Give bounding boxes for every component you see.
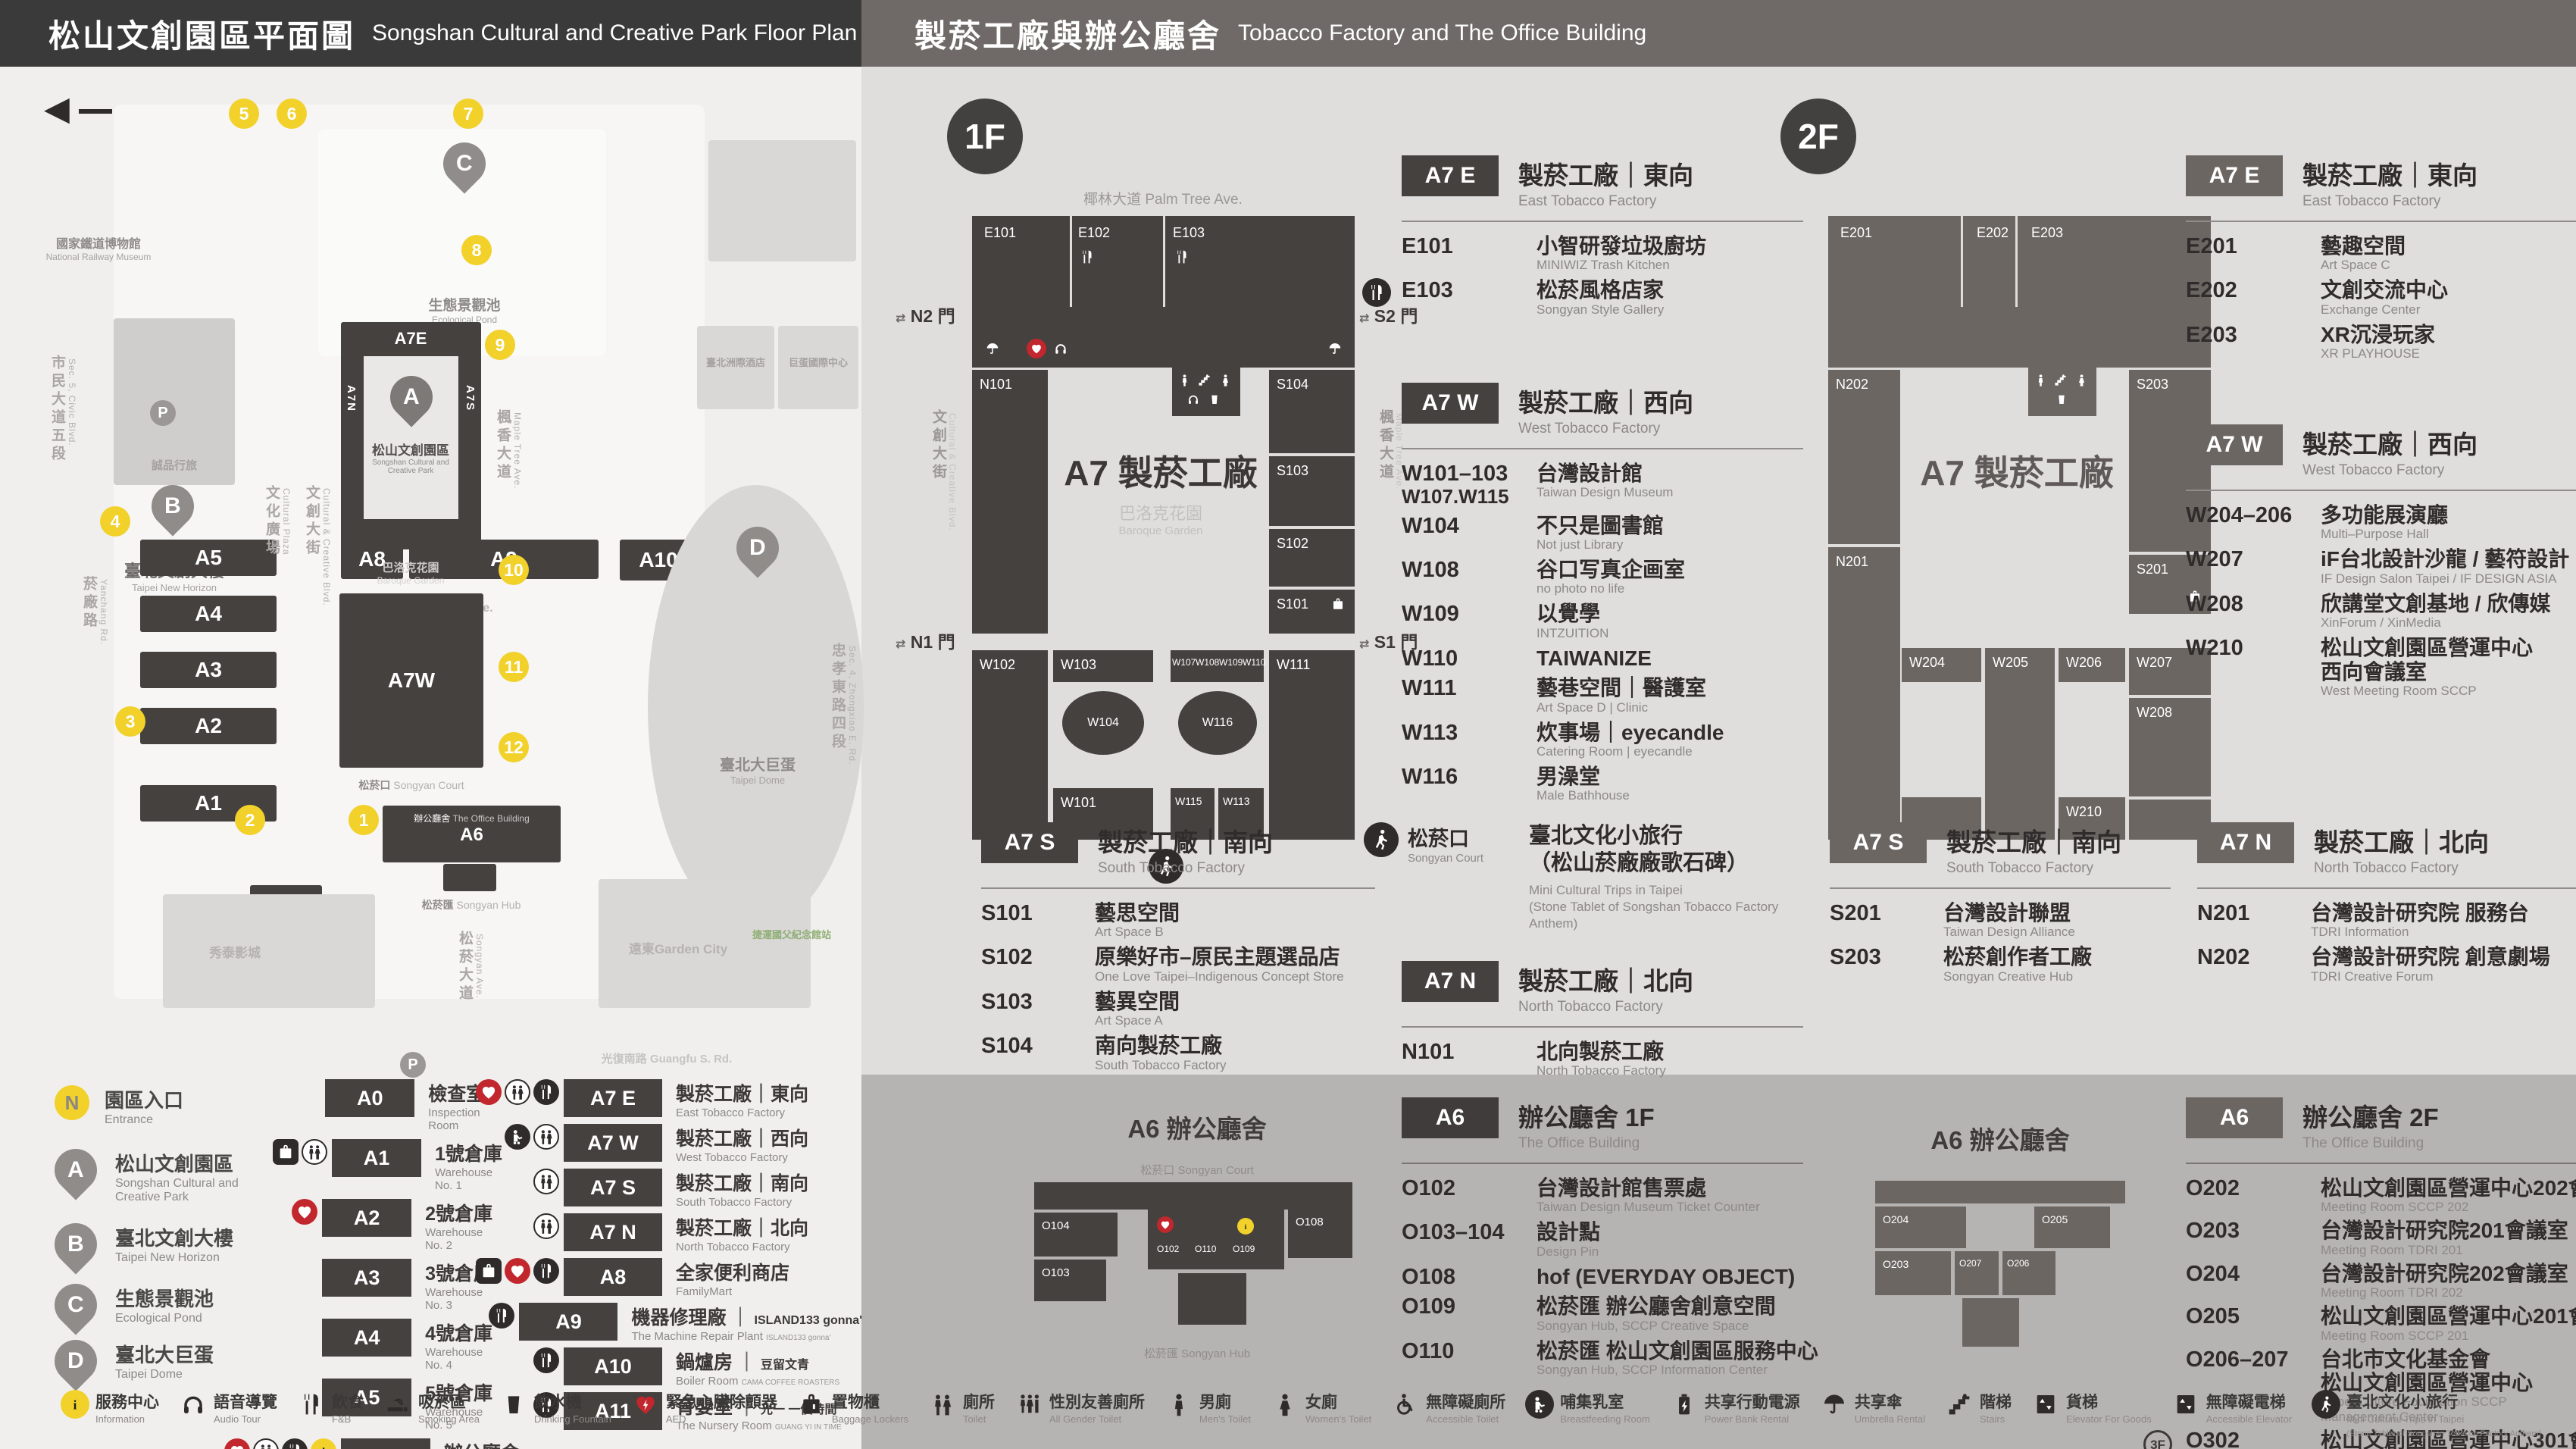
listing-row: W210 松山文創園區營運中心西向會議室West Meeting Room SC…: [2186, 636, 2576, 699]
building-code-chip: A6: [341, 1438, 430, 1449]
listing-row: W207 iF台北設計沙龍 / 藝符設計IF Design Salon Taip…: [2186, 547, 2576, 586]
legend-building-row: A8 全家便利商店｜ FamilyMart: [468, 1258, 862, 1298]
strip-goods-elevator: 貨梯Elevator For Goods: [2031, 1390, 2152, 1426]
listing-row: O109 松菸匯 辦公廳舍創意空間Songyan Hub, SCCP Creat…: [1402, 1294, 1803, 1333]
section-1f-east: A7 E 製菸工廠｜東向East Tobacco Factory E101 小智…: [1402, 155, 1803, 323]
room-s101: S101: [1269, 590, 1355, 634]
building-name-zh: 製菸工廠｜西向: [676, 1128, 808, 1150]
strip-audio-tour: 語音導覽Audio Tour: [179, 1390, 277, 1426]
room-n202: N202: [1828, 370, 1900, 544]
section-2f-west: A7 W 製菸工廠｜西向West Tobacco Factory W204–20…: [2186, 424, 2576, 704]
toilet-icon: [253, 1438, 279, 1449]
songyan-court-block: 松菸口Songyan Court 臺北文化小旅行 （松山菸廠廠歌石碑） Mini…: [1408, 822, 1817, 932]
building-name-en: South Tobacco Factory: [676, 1196, 792, 1209]
information-icon: [1237, 1218, 1254, 1235]
mens-toilet-icon: [1165, 1390, 1193, 1419]
building-code-chip: A3: [322, 1259, 411, 1297]
compass-line: [79, 109, 112, 114]
civic-blvd-label: 市民大道五段: [47, 355, 67, 464]
north-arrow-icon: ◀: [44, 89, 70, 128]
room-s103: S103: [1269, 456, 1355, 526]
building-name-zh: 製菸工廠｜北向: [676, 1218, 808, 1239]
building-code-chip: A0: [325, 1079, 414, 1117]
building-a4: A4: [140, 596, 277, 632]
building-name-zh: 辦公廳舍: [444, 1443, 520, 1449]
guangfu-rd-label: 光復南路 Guangfu S. Rd.: [602, 1050, 733, 1066]
strip-womens: 女廁Women's Toilet: [1271, 1390, 1371, 1426]
listing-row: W204–206 多功能展演廳Multi–Purpose Hall: [2186, 503, 2576, 542]
room-w111: W111: [1269, 650, 1355, 840]
building-a2: A2: [140, 708, 277, 744]
zhongxiao-rd-en: Sec. 4, Zhongxiao E. Rd.: [847, 646, 858, 765]
room-o204: O204: [1875, 1206, 1966, 1248]
strip-fnb: 飲食F&B: [297, 1390, 364, 1426]
hotel1-label: 臺北洲際酒店: [706, 355, 765, 369]
stairs-icon: [2054, 374, 2067, 390]
womens-toilet-icon: [1219, 374, 1232, 390]
building-code-chip: A7 N: [564, 1213, 662, 1251]
room-divider: [2015, 216, 2018, 307]
legend-building-row: A7 E 製菸工廠｜東向｜ East Tobacco Factory: [468, 1079, 862, 1119]
cultural-plaza-label: 文化廣場: [261, 485, 282, 558]
womens-toilet-icon: [2075, 374, 2088, 390]
office-plan-title: A6 辦公廳舍: [1930, 1120, 2069, 1156]
room-o203: O203: [1875, 1251, 1951, 1295]
songyan-ave-label: 松菸大道: [455, 931, 475, 1003]
facility-icon-strip: 服務中心Information 語音導覽Audio Tour 飲食F&B 吸菸區…: [61, 1390, 2541, 1440]
legend-building-row: A4 4號倉庫｜ Warehouse No. 4: [273, 1319, 492, 1372]
toilet-icon: [533, 1124, 559, 1150]
strip-breastfeeding: 哺集乳室Breastfeeding Room: [1525, 1390, 1650, 1426]
room-w206: W206: [2059, 648, 2125, 682]
section-1f-north: A7 N 製菸工廠｜北向North Tobacco Factory N101 北…: [1402, 961, 1803, 1084]
power-bank-rental-icon: [1670, 1390, 1699, 1419]
building-name-en: FamilyMart: [676, 1285, 732, 1298]
listing-row: E202 文創交流中心Exchange Center: [2186, 278, 2576, 317]
listing-row: S201 台灣設計聯盟Taiwan Design Alliance: [1830, 901, 2171, 940]
umbrella-icon: [1328, 342, 1342, 359]
yanchang-rd-label: 菸廠路: [79, 576, 99, 631]
a7-plan-title: A7 製菸工廠: [1920, 446, 2114, 496]
aed-icon: [1157, 1216, 1174, 1233]
room-w107-110: W107 W108 W109 W110: [1171, 650, 1264, 682]
room-n101: N101: [972, 370, 1048, 634]
building-name-en: The Machine Repair Plant: [631, 1330, 762, 1343]
dome-label: 臺北大巨蛋Taipei Dome: [720, 753, 796, 786]
section-2f-south: A7 S 製菸工廠｜南向South Tobacco Factory S201 台…: [1830, 822, 2171, 990]
civic-blvd-en: Sec. 5, Civic Blvd.: [67, 358, 77, 446]
audio-tour-icon: [1054, 342, 1068, 359]
room-block-east: E201 E202 E203: [1828, 216, 2211, 368]
songyan-court-icon: [1364, 822, 1399, 857]
umbrella-rental-icon: [1820, 1390, 1849, 1419]
parking-icon: P: [400, 1052, 426, 1078]
audio-tour-icon: [1187, 393, 1199, 409]
listing-row: O103–104 設計點Design Pin: [1402, 1220, 1803, 1259]
cultural-plaza-en: Cultural Plaza: [281, 488, 292, 556]
entrance-marker-3: 3: [115, 706, 145, 737]
toilet-icon: [302, 1139, 327, 1165]
pond-label: 生態景觀池Ecological Pond: [428, 294, 500, 325]
floor-2f-plan: E201 E202 E203 N202 N201 S203 S201 W207 …: [1818, 182, 2243, 864]
mens-toilet-icon: [1178, 374, 1191, 390]
creative-blvd-plan-en: Cultural & Creative Blvd.: [947, 413, 958, 531]
floor-1f-circle: 1F: [947, 99, 1023, 174]
toilet-icon: [533, 1213, 559, 1239]
entrance-marker-12: 12: [499, 732, 529, 762]
accessible-toilet-icon: [1391, 1390, 1420, 1419]
listing-row: W104 不只是圖書館Not just Library: [1402, 514, 1803, 552]
toilet-stub: [1172, 368, 1240, 416]
songyan-hub-label: 松菸匯 Songyan Hub: [1144, 1345, 1250, 1361]
songyan-court-label: 松菸口 Songyan Court: [358, 778, 464, 793]
right-header: 製菸工廠與辦公廳舍 Tobacco Factory and The Office…: [861, 0, 2576, 67]
baroque-garden-plan-label: 巴洛克花園: [1119, 500, 1202, 524]
left-title-zh: 松山文創園區平面圖: [48, 11, 355, 57]
entrance-zh: 園區入口: [105, 1085, 183, 1113]
room-w204: W204: [1902, 648, 1981, 682]
room-s102: S102: [1269, 529, 1355, 587]
listing-row: W110 TAIWANIZE: [1402, 646, 1803, 671]
maple-ave-en: Maple Tree Ave.: [512, 412, 523, 490]
strip-accessible-toilet: 無障礙廁所Accessible Toilet: [1391, 1390, 1505, 1426]
strip-all-gender: 性別友善廁所All Gender Toilet: [1014, 1390, 1145, 1426]
building-name-zh: 機器修理廠: [631, 1307, 726, 1329]
strip-accessible-elevator: 無障礙電梯Accessible Elevator: [2171, 1390, 2292, 1426]
baroque-garden-label: 巴洛克花園Baroque Garden: [377, 559, 445, 586]
a7n-map-label: A7N: [345, 385, 358, 412]
listing-row: S203 松菸創作者工廠Songyan Creative Hub: [1830, 945, 2171, 984]
strip-mens: 男廁Men's Toilet: [1165, 1390, 1251, 1426]
songyan-court-label: 松菸口 Songyan Court: [1140, 1162, 1253, 1178]
palm-tree-ave-plan-label: 椰林大道 Palm Tree Ave.: [1083, 188, 1243, 208]
restaurant-icon: [533, 1258, 559, 1284]
legend-pin-d: D 臺北大巨蛋Taipei Dome: [55, 1340, 282, 1382]
left-title-en: Songshan Cultural and Creative Park Floo…: [372, 20, 857, 46]
building-a6: 辦公廳舍 The Office Building A6: [383, 806, 561, 862]
gardencity-label: 遠東Garden City: [629, 938, 727, 957]
aed-icon: [1027, 339, 1046, 358]
section-badge: A7 E: [2186, 155, 2283, 196]
entrance-marker-6: 6: [277, 99, 307, 129]
office-top-bar: [1034, 1182, 1352, 1210]
room-o205: O205: [2034, 1206, 2110, 1248]
audio-tour-icon: [179, 1390, 208, 1419]
left-header: 松山文創園區平面圖 Songshan Cultural and Creative…: [0, 0, 861, 67]
aed-icon: [292, 1199, 317, 1225]
songyan-ave-en: Songyan Ave.: [474, 934, 485, 999]
section-badge: A7 N: [1402, 961, 1499, 1002]
legend-building-row: A9 機器修理廠｜ISLAND133 gonna' The Machine Re…: [468, 1303, 862, 1343]
legend-building-row: A6 辦公廳舍｜ The Office Building: [273, 1438, 492, 1449]
legend-building-row: A2 2號倉庫｜ Warehouse No. 2: [273, 1199, 492, 1252]
entrance-marker-11: 11: [499, 652, 529, 682]
legend-building-row: A7 N 製菸工廠｜北向｜ North Tobacco Factory: [468, 1213, 862, 1253]
room-w208: W208: [2129, 698, 2211, 796]
goods-elevator-icon: [2031, 1390, 2060, 1419]
room-o102-109: O102 O110 O109: [1148, 1209, 1284, 1269]
room-divider: [1163, 216, 1165, 307]
listing-row: E201 藝趣空間Art Space C: [2186, 234, 2576, 273]
railway-museum-label: 國家鐵道博物館National Railway Museum: [46, 233, 152, 262]
listing-row: S103 藝異空間Art Space A: [981, 990, 1375, 1028]
information-icon: [311, 1438, 336, 1449]
creative-blvd-plan-label: 文創大街: [928, 409, 949, 482]
songyan-hub-label: 松菸匯 Songyan Hub: [422, 897, 521, 912]
floor-1f-plan: 椰林大道 Palm Tree Ave. E101 E102 E103 ⇄ N2 …: [962, 182, 1386, 864]
listing-row: E103 松菸風格店家Songyan Style Gallery: [1402, 278, 1803, 317]
creative-blvd-en: Cultural & Creative Blvd.: [321, 488, 332, 606]
pin-d-icon: D: [45, 1331, 105, 1391]
listing-row: O204 台灣設計研究院202會議室Meeting Room TDRI 202: [2186, 1262, 2576, 1300]
building-code-chip: A7 E: [564, 1079, 662, 1117]
strip-mini-cultural-trips: 臺北文化小旅行Mini Cultural Trips in Taipei(Sto…: [2312, 1390, 2541, 1440]
government-block: [708, 140, 856, 261]
section-badge: A7 W: [2186, 424, 2283, 465]
baggage-lockers-icon: [476, 1258, 502, 1284]
parking-icon: P: [150, 400, 176, 426]
womens-toilet-icon: [1271, 1390, 1299, 1419]
umbrella-icon: [986, 342, 999, 359]
entrance-marker-9: 9: [485, 330, 515, 360]
cinema-block: [163, 894, 375, 1008]
room-o103: O103: [1034, 1260, 1106, 1301]
building-code-chip: A7 S: [564, 1169, 662, 1206]
restaurant-icon: [533, 1347, 559, 1373]
listing-row: O102 台灣設計館售票處Taiwan Design Museum Ticket…: [1402, 1176, 1803, 1215]
building-name-zh: 製菸工廠｜南向: [676, 1173, 808, 1194]
baggage-lockers-icon: [797, 1390, 826, 1419]
office-2f-plan: A6 辦公廳舍 O204 O205 O203 O207 O206: [1864, 1114, 2137, 1372]
aed-icon: [476, 1079, 502, 1105]
creative-blvd-label: 文創大街: [302, 485, 322, 558]
baroque-garden-plan-en: Baroque Garden: [1119, 524, 1203, 537]
listing-row: W113 炊事場｜eyecandleCatering Room | eyecan…: [1402, 721, 1803, 759]
section-1f-south: A7 S 製菸工廠｜南向South Tobacco Factory S101 藝…: [981, 822, 1375, 1078]
aed-icon: [224, 1438, 250, 1449]
building-code-chip: A8: [564, 1258, 662, 1296]
listing-row: W116 男澡堂Male Bathhouse: [1402, 765, 1803, 803]
building-a5: A5: [140, 540, 277, 576]
office-stub: [1962, 1298, 2019, 1347]
building-name-zh: 全家便利商店: [676, 1263, 789, 1284]
toilet-icon: [928, 1390, 957, 1419]
legend-buildings-col2: A7 E 製菸工廠｜東向｜ East Tobacco Factory A7 W: [468, 1079, 862, 1437]
a6-stub: [443, 864, 496, 891]
listing-row: N201 台灣設計研究院 服務台TDRI Information: [2197, 901, 2576, 940]
smoking-area-icon: [383, 1390, 412, 1419]
room-o206: O206: [2002, 1251, 2055, 1295]
strip-aed: 緊急心臟除顫器AED: [631, 1390, 777, 1426]
building-name-en: East Tobacco Factory: [676, 1106, 785, 1119]
section-2f-north: A7 N 製菸工廠｜北向North Tobacco Factory N201 台…: [2197, 822, 2576, 990]
drinking-fountain-icon: [499, 1390, 528, 1419]
section-badge: A7 W: [1402, 383, 1499, 424]
room-w104: W104: [1062, 691, 1144, 755]
restaurant-icon: [1174, 249, 1190, 268]
gate-n1: ⇄ N1 門: [896, 627, 955, 653]
section-badge: A7 S: [981, 822, 1078, 863]
room-o108: O108: [1288, 1209, 1352, 1258]
listing-row: N202 台灣設計研究院 創意劇場TDRI Creative Forum: [2197, 945, 2576, 984]
strip-information: 服務中心Information: [61, 1390, 159, 1426]
entrance-marker-8: 8: [461, 235, 492, 265]
entrance-marker-7: 7: [453, 99, 483, 129]
strip-toilet: 廁所Toilet: [928, 1390, 995, 1426]
maple-ave-label: 楓香大道: [492, 409, 513, 482]
gate-n2: ⇄ N2 門: [896, 302, 955, 327]
strip-power-bank: 共享行動電源Power Bank Rental: [1670, 1390, 1800, 1426]
listing-row: O108 hof (EVERYDAY OBJECT): [1402, 1265, 1803, 1289]
listing-row: O205 松山文創園區營運中心201會議室Meeting Room SCCP 2…: [2186, 1304, 2576, 1343]
hotel2-label: 巨蛋國際中心: [789, 355, 848, 369]
room-w102: W102: [972, 650, 1048, 840]
pin-a-icon: A: [45, 1140, 105, 1200]
listing-row: S104 南向製菸工廠South Tobacco Factory: [981, 1034, 1375, 1072]
legend-building-row: A7 S 製菸工廠｜南向｜ South Tobacco Factory: [468, 1169, 862, 1209]
building-code-chip: A10: [564, 1347, 662, 1385]
office-plan-title: A6 辦公廳舍: [1127, 1109, 1266, 1145]
mens-toilet-icon: [2034, 374, 2047, 390]
entrance-n-icon: N: [55, 1085, 89, 1120]
listing-row: O203 台灣設計研究院201會議室Meeting Room TDRI 201: [2186, 1219, 2576, 1257]
entrance-marker-1: 1: [349, 805, 379, 835]
listing-row: W111 藝巷空間｜醫護室Art Space D | Clinic: [1402, 676, 1803, 715]
pin-b-icon: B: [45, 1214, 105, 1274]
section-badge: A6: [2186, 1097, 2283, 1138]
listing-row: S101 藝思空間Art Space B: [981, 901, 1375, 940]
legend-pin-c: C 生態景觀池Ecological Pond: [55, 1284, 282, 1326]
park-map: ◀ 國家鐵道博物館National Railway Museum A0C 生態景…: [0, 67, 861, 1075]
mini-cultural-trips-icon: [2312, 1390, 2340, 1419]
cinema-label: 秀泰影城: [209, 942, 261, 961]
building-name-en: Boiler Room: [676, 1375, 739, 1388]
food-icon: [297, 1390, 326, 1419]
restaurant-icon: [533, 1079, 559, 1105]
legend-pin-b: B 臺北文創大樓Taipei New Horizon: [55, 1223, 282, 1266]
restaurant-icon: [489, 1303, 514, 1329]
legend-building-row: A10 鍋爐房｜豆留文青 Boiler Room CAMA COFFEE ROA…: [468, 1347, 862, 1388]
baggage-lockers-icon: [1331, 597, 1345, 615]
all-gender-toilet-icon: [1014, 1390, 1043, 1419]
building-code-chip: A7 W: [564, 1124, 662, 1162]
strip-stairs: 階梯Stairs: [1945, 1390, 2012, 1426]
listing-row: E101 小智研發垃圾廚坊MINIWIZ Trash Kitchen: [1402, 234, 1803, 273]
room-o207: O207: [1955, 1251, 1999, 1295]
building-code-chip: A1: [332, 1139, 421, 1177]
entrance-marker-4: 4: [100, 506, 130, 537]
toilet-icon: [505, 1079, 530, 1105]
listing-row: W101–103W107.W115 台灣設計館Taiwan Design Mus…: [1402, 462, 1803, 509]
aed-icon: [505, 1258, 530, 1284]
listing-row: O202 松山文創園區營運中心202會議室Meeting Room SCCP 2…: [2186, 1176, 2576, 1215]
zhongxiao-rd-label: 忠孝東路四段: [827, 643, 848, 752]
section-office-1f: A6 辦公廳舍 1FThe Office Building O102 台灣設計館…: [1402, 1097, 1803, 1383]
mrt-label: 捷運國父紀念館站: [752, 927, 831, 941]
listing-row: S102 原樂好市–原民主題選品店One Love Taipei–Indigen…: [981, 945, 1375, 984]
eslite-hotel-label: 誠品行旅: [152, 457, 197, 473]
listing-row: W108 谷口写真企画室no photo no life: [1402, 558, 1803, 596]
room-n201: N201: [1828, 547, 1900, 840]
strip-drinking: 飲水機Drinking Fountain: [499, 1390, 611, 1426]
building-name-en: West Tobacco Factory: [676, 1151, 788, 1164]
yanchang-rd-en: Yanchang Rd.: [98, 579, 109, 645]
listing-row: W208 欣講堂文創基地 / 欣傳媒XinForum / XinMedia: [2186, 592, 2576, 631]
building-code-chip: A2: [322, 1199, 411, 1237]
maple-ave-plan-label: 楓香大道: [1375, 409, 1396, 482]
drinking-fountain-icon: [2055, 393, 2068, 409]
pin-c-icon: C: [45, 1275, 105, 1335]
section-badge: A7 N: [2197, 822, 2294, 863]
legend-building-row: A0 檢查室｜ Inspection Room: [273, 1079, 492, 1132]
legend-building-row: A7 W 製菸工廠｜西向｜ West Tobacco Factory: [468, 1124, 862, 1164]
floor-2f-circle: 2F: [1780, 99, 1856, 174]
breastfeeding-room-icon: [505, 1124, 530, 1150]
office-top-bar: [1875, 1181, 2125, 1203]
listing-row: W109 以覺學INTZUITION: [1402, 602, 1803, 640]
floor-plan-poster: 松山文創園區平面圖 Songshan Cultural and Creative…: [0, 0, 2576, 1449]
room-w205: W205: [1985, 648, 2055, 840]
stairs-icon: [1198, 374, 1211, 390]
restaurant-icon: [1080, 249, 1095, 268]
section-badge: A7 S: [1830, 822, 1927, 863]
listing-row: O110 松菸匯 松山文創園區服務中心Songyan Hub, SCCP Inf…: [1402, 1339, 1803, 1378]
accessible-elevator-icon: [2171, 1390, 2200, 1419]
stairs-icon: [1945, 1390, 1974, 1419]
toilet-icon: [533, 1169, 559, 1194]
a7-plan-title: A7 製菸工廠: [1064, 446, 1258, 496]
legend-entrance: N 園區入口Entrance: [55, 1085, 183, 1127]
listing-row: N101 北向製菸工廠North Tobacco Factory: [1402, 1040, 1803, 1078]
room-divider: [1070, 216, 1072, 307]
section-1f-west: A7 W 製菸工廠｜西向West Tobacco Factory W101–10…: [1402, 383, 1803, 809]
right-title-en: Tobacco Factory and The Office Building: [1238, 20, 1646, 46]
office-stub: [1178, 1273, 1246, 1325]
section-badge: A7 E: [1402, 155, 1499, 196]
building-name-en: North Tobacco Factory: [676, 1241, 790, 1253]
entrance-marker-5: 5: [229, 99, 259, 129]
section-2f-east: A7 E 製菸工廠｜東向East Tobacco Factory E201 藝趣…: [2186, 155, 2576, 367]
strip-umbrella: 共享傘Umbrella Rental: [1820, 1390, 1925, 1426]
listing-row: E203 XR沉浸玩家XR PLAYHOUSE: [2186, 323, 2576, 361]
legend-building-row: A3 3號倉庫｜ Warehouse No. 3: [273, 1259, 492, 1312]
entrance-marker-2: 2: [235, 805, 265, 835]
information-icon: [61, 1390, 89, 1419]
restaurant-icon: [282, 1438, 308, 1449]
legend-building-row: A1 1號倉庫｜ Warehouse No. 1: [273, 1139, 492, 1192]
strip-lockers: 置物櫃Baggage Lockers: [797, 1390, 908, 1426]
room-divider: [1961, 216, 1963, 307]
a7e-map-label: A7E: [395, 329, 427, 349]
section-badge: A6: [1402, 1097, 1499, 1138]
baggage-lockers-icon: [273, 1139, 299, 1165]
entrance-marker-10: 10: [499, 555, 529, 585]
sccp-label: 松山文創園區Songshan Cultural andCreative Park: [372, 440, 449, 475]
building-a7w: A7W: [339, 593, 483, 768]
building-name-zh: 製菸工廠｜東向: [676, 1084, 808, 1105]
strip-smoking: 吸菸區Smoking Area: [383, 1390, 480, 1426]
room-w103: W103: [1053, 650, 1153, 682]
building-code-chip: A4: [322, 1319, 411, 1357]
room-o104: O104: [1034, 1213, 1118, 1257]
entrance-en: Entrance: [105, 1113, 183, 1127]
building-a3: A3: [140, 652, 277, 688]
right-title-zh: 製菸工廠與辦公廳舍: [914, 11, 1221, 57]
building-name-zh: 鍋爐房: [676, 1352, 733, 1373]
toilet-stub: [2028, 368, 2096, 416]
drinking-fountain-icon: [1208, 393, 1221, 409]
a7s-map-label: A7S: [464, 385, 477, 412]
